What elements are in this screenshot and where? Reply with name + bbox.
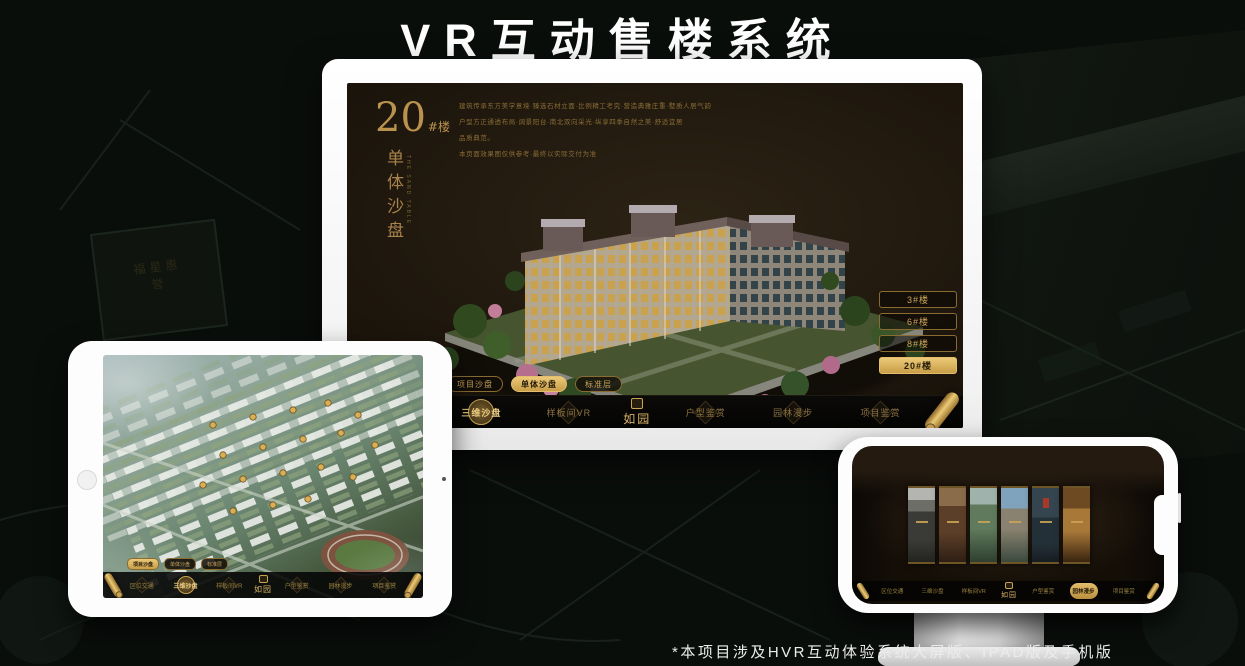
menu-item-garden-walk[interactable]: 园林漫步	[760, 398, 826, 426]
tablet-menu-item-project-view[interactable]: 项目鉴赏	[365, 574, 403, 596]
view-tabs: 项目沙盘 单体沙盘 标准层	[447, 376, 622, 392]
building-button-3[interactable]: 3#楼	[879, 291, 957, 308]
poster-footnote: *本项目涉及HVR互动体验系统大屏版、IPAD版及手机版	[672, 641, 1113, 662]
tablet-menu-item-garden-walk[interactable]: 园林漫步	[322, 574, 360, 596]
background-billboard: 福星惠誉	[90, 219, 228, 342]
phone-menu-item-location[interactable]: 区位交通	[878, 583, 906, 599]
gallery-panel[interactable]	[1001, 486, 1028, 564]
tab-standard-floor[interactable]: 标准层	[575, 376, 622, 392]
tab-single-sandtable[interactable]: 单体沙盘	[511, 376, 567, 392]
phone-menu-item-garden-walk[interactable]: 园林漫步	[1070, 583, 1098, 599]
phone-device: 区位交通 三维沙盘 样板间VR 如园 户型鉴赏 园林漫步	[838, 437, 1178, 613]
tablet-view-tabs: 项目沙盘 单体沙盘 标准层	[127, 558, 228, 570]
phone-screen: 区位交通 三维沙盘 样板间VR 如园 户型鉴赏 园林漫步	[852, 446, 1164, 604]
scroll-end-icon	[403, 572, 423, 598]
brand-logo: 如园	[1001, 582, 1017, 600]
scroll-end-icon	[103, 572, 123, 598]
background-road-band	[969, 77, 1245, 216]
tablet-tab-standard-floor[interactable]: 标准层	[201, 558, 228, 570]
scroll-end-icon	[856, 582, 871, 600]
menu-item-project-view[interactable]: 项目鉴赏	[848, 398, 914, 426]
building-selector: 3#楼 6#楼 8#楼 20#楼	[879, 291, 957, 374]
seal-icon	[631, 398, 643, 409]
poster-canvas: 福星惠誉 VR互动售楼系统 20#楼 单体沙盘 THE SAND TABLE 建…	[0, 0, 1245, 666]
background-aerial-photo	[939, 20, 1245, 480]
tablet-menu-bar: 区位交通 三维沙盘 样板间VR 如园 户型鉴赏	[103, 572, 423, 598]
building-button-8[interactable]: 8#楼	[879, 335, 957, 352]
gallery-panel[interactable]	[908, 486, 935, 564]
phone-menu-item-project-view[interactable]: 项目鉴赏	[1110, 583, 1138, 599]
building-number-heading: 20#楼	[375, 97, 450, 139]
description-line: 建筑传承东方美学意境·臻选石材立面·比例精工考究·营造典雅庄重·墅质人居气韵	[459, 99, 799, 115]
tablet-screen: 项目沙盘 单体沙盘 标准层 区位交通 三维沙盘 样板间VR	[103, 355, 423, 598]
tablet-camera-icon	[442, 477, 446, 481]
menu-item-3d-sandtable[interactable]: 三维沙盘	[448, 398, 514, 426]
tablet-menu-item-showroom-vr[interactable]: 样板间VR	[210, 574, 248, 596]
seal-icon	[1005, 582, 1013, 589]
phone-menu-item-3d-sandtable[interactable]: 三维沙盘	[918, 583, 946, 599]
building-button-6[interactable]: 6#楼	[879, 313, 957, 330]
menu-item-floorplan[interactable]: 户型鉴赏	[673, 398, 739, 426]
brand-logo: 如园	[623, 398, 651, 427]
gallery-panel[interactable]	[939, 486, 966, 564]
gallery-panel[interactable]	[1063, 486, 1090, 564]
phone-notch	[1154, 495, 1164, 555]
tablet-menu-item-3d-sandtable[interactable]: 三维沙盘	[167, 574, 205, 596]
seal-icon	[259, 575, 268, 583]
background-billboard-text: 福星惠誉	[127, 255, 191, 296]
brand-logo: 如园	[254, 575, 272, 595]
tablet-home-button[interactable]	[77, 470, 97, 490]
phone-menu-item-floorplan[interactable]: 户型鉴赏	[1029, 583, 1057, 599]
phone-menu-item-showroom-vr[interactable]: 样板间VR	[959, 583, 989, 599]
gallery-panel[interactable]	[970, 486, 997, 564]
building-number-suffix: #楼	[428, 120, 450, 134]
scroll-handle-icon[interactable]	[922, 390, 961, 428]
scroll-end-icon	[1146, 582, 1161, 600]
tablet-tab-single-sandtable[interactable]: 单体沙盘	[164, 558, 196, 570]
building-button-20-active[interactable]: 20#楼	[879, 357, 957, 374]
tablet-tab-project-sandtable[interactable]: 项目沙盘	[127, 558, 159, 570]
building-number: 20	[375, 95, 426, 141]
tablet-device: 项目沙盘 单体沙盘 标准层 区位交通 三维沙盘 样板间VR	[68, 341, 452, 617]
description-line: 户型方正通透布局·阔景阳台·南北双向采光·纵享四季自然之美·舒适宜居	[459, 115, 799, 131]
phone-menu-bar: 区位交通 三维沙盘 样板间VR 如园 户型鉴赏 园林漫步	[852, 581, 1164, 601]
description-line: 品质典范。	[459, 131, 799, 147]
tab-project-sandtable[interactable]: 项目沙盘	[447, 376, 503, 392]
tablet-menu-item-floorplan[interactable]: 户型鉴赏	[278, 574, 316, 596]
building-description: 建筑传承东方美学意境·臻选石材立面·比例精工考究·营造典雅庄重·墅质人居气韵 户…	[459, 99, 799, 163]
menu-item-showroom-vr[interactable]: 样板间VR	[536, 398, 602, 426]
gallery-panel[interactable]	[1032, 486, 1059, 564]
tablet-menu-item-location[interactable]: 区位交通	[123, 574, 161, 596]
scene-gallery	[908, 486, 1090, 564]
phone-side-button	[1178, 493, 1181, 523]
